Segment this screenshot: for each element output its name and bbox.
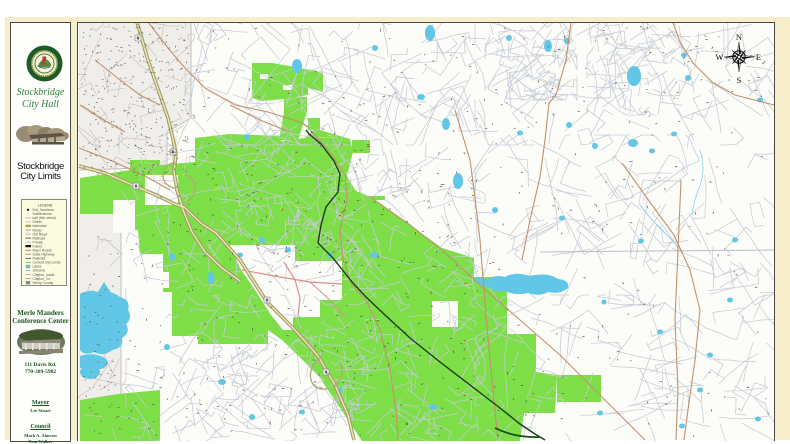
- svg-text:S: S: [737, 75, 742, 85]
- svg-text:LEGEND: LEGEND: [38, 204, 53, 208]
- svg-text:N: N: [736, 32, 742, 42]
- svg-text:E: E: [756, 52, 761, 62]
- svg-text:W: W: [715, 52, 723, 62]
- svg-text:Henry County: Henry County: [33, 281, 54, 285]
